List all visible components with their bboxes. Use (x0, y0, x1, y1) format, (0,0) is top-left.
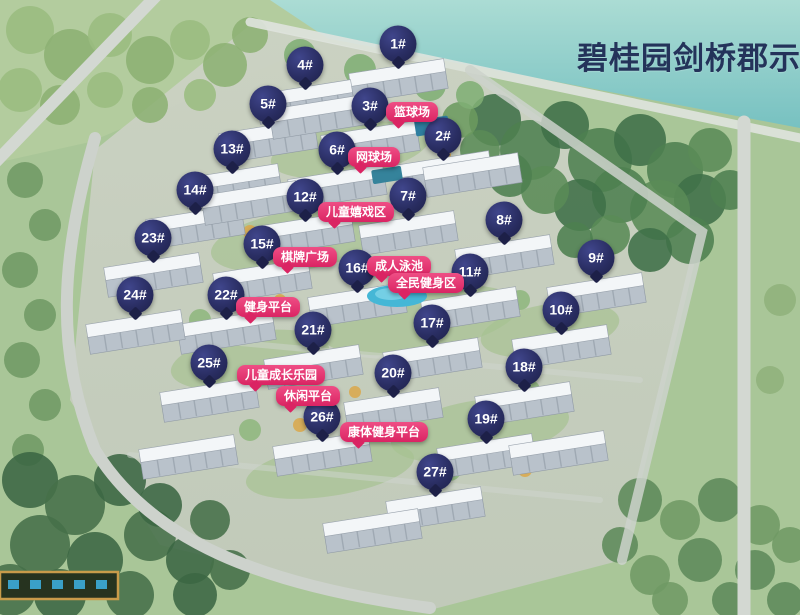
building-marker-24: 24# (117, 277, 154, 314)
building-marker-5: 5# (250, 86, 287, 123)
building-marker-1: 1# (380, 26, 417, 63)
building-marker-4: 4# (287, 47, 324, 84)
amenity-label: 儿童成长乐园 (237, 365, 325, 385)
amenity-label: 儿童嬉戏区 (318, 202, 394, 222)
building-marker-17: 17# (414, 305, 451, 342)
building-marker-14: 14# (177, 172, 214, 209)
amenity-labels-layer: 篮球场网球场儿童嬉戏区棋牌广场成人泳池全民健身区健身平台儿童成长乐园休闲平台康体… (0, 0, 800, 615)
amenity-label: 休闲平台 (276, 386, 340, 406)
amenity-label: 棋牌广场 (273, 247, 337, 267)
amenity-label: 康体健身平台 (340, 422, 428, 442)
building-marker-2: 2# (425, 118, 462, 155)
site-plan-image: 1#2#3#4#5#6#7#8#9#10#11#12#13#14#15#16#1… (0, 0, 800, 615)
building-marker-8: 8# (486, 202, 523, 239)
amenity-label: 健身平台 (236, 297, 300, 317)
page-title: 碧桂园剑桥郡示 (577, 33, 800, 78)
building-marker-9: 9# (578, 240, 615, 277)
building-marker-25: 25# (191, 345, 228, 382)
building-marker-20: 20# (375, 355, 412, 392)
building-marker-21: 21# (295, 312, 332, 349)
building-marker-18: 18# (506, 349, 543, 386)
amenity-label: 全民健身区 (388, 273, 464, 293)
building-marker-7: 7# (390, 178, 427, 215)
building-marker-23: 23# (135, 220, 172, 257)
building-marker-3: 3# (352, 88, 389, 125)
amenity-label: 篮球场 (386, 102, 438, 122)
building-marker-13: 13# (214, 131, 251, 168)
building-marker-10: 10# (543, 292, 580, 329)
building-marker-19: 19# (468, 401, 505, 438)
amenity-label: 网球场 (348, 147, 400, 167)
building-marker-27: 27# (417, 454, 454, 491)
